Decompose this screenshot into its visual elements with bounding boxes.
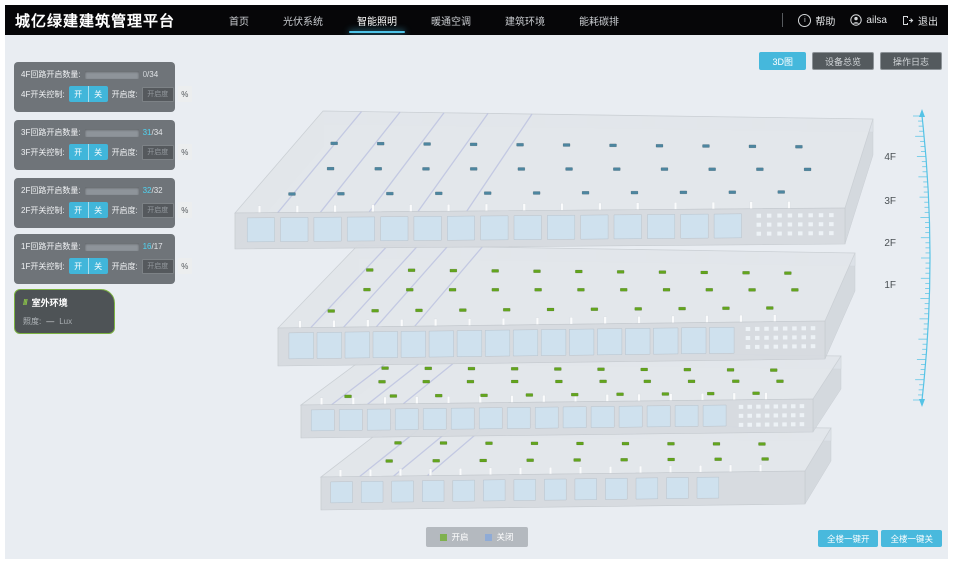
nav-item-home[interactable]: 首页: [227, 4, 251, 37]
help-icon: i: [798, 14, 811, 27]
switch-off-button[interactable]: 关: [89, 144, 108, 160]
switch-control-label: 2F开关控制:: [21, 205, 65, 216]
dim-level-label: 开启度:: [112, 147, 138, 158]
dim-level-input[interactable]: [142, 87, 174, 102]
switch-off-button[interactable]: 关: [89, 258, 108, 274]
logout-icon: [902, 15, 914, 26]
floor-panel-4f: 4F回路开启数量: 0/34 4F开关控制: 开 关 开启度: %: [14, 62, 175, 112]
logout-button[interactable]: 退出: [902, 13, 938, 28]
dim-level-label: 开启度:: [112, 89, 138, 100]
nav-item-hvac[interactable]: 暖通空调: [429, 4, 473, 37]
view-toolbar: 3D图 设备总览 操作日志: [759, 52, 942, 70]
dim-level-input[interactable]: [142, 259, 174, 274]
floor-panel-1f: 1F回路开启数量: 16/17 1F开关控制: 开 关 开启度: %: [14, 234, 175, 284]
circuit-count-value: 32/32: [143, 186, 163, 195]
legend-on-label: 开启: [451, 531, 468, 543]
legend-item-off: 关闭: [485, 531, 514, 543]
circuit-count-label: 1F回路开启数量:: [21, 241, 81, 252]
circuit-progress-bar: [85, 187, 139, 195]
illuminance-value: —: [46, 317, 54, 326]
page: 城亿绿建建筑管理平台 首页 光伏系统 智能照明 暖通空调 建筑环境 能耗碳排 i…: [0, 0, 953, 564]
floor-panel-2f: 2F回路开启数量: 32/32 2F开关控制: 开 关 开启度: %: [14, 178, 175, 228]
circuit-count-label: 3F回路开启数量:: [21, 127, 81, 138]
legend-off-label: 关闭: [497, 531, 514, 543]
dim-level-label: 开启度:: [112, 261, 138, 272]
circuit-count-label: 4F回路开启数量:: [21, 69, 81, 80]
device-overview-button[interactable]: 设备总览: [812, 52, 874, 70]
operation-log-button[interactable]: 操作日志: [880, 52, 942, 70]
header-right: i 帮助 ailsa 退出: [782, 13, 938, 28]
percent-button[interactable]: %: [178, 202, 192, 218]
user-icon: [850, 14, 862, 26]
floor-axis-label-2f[interactable]: 2F: [884, 238, 896, 249]
switch-off-button[interactable]: 关: [89, 86, 108, 102]
switch-off-button[interactable]: 关: [89, 202, 108, 218]
user-menu[interactable]: ailsa: [850, 14, 887, 26]
floor-axis-label-1f[interactable]: 1F: [884, 280, 896, 291]
switch-control-label: 4F开关控制:: [21, 89, 65, 100]
dim-level-label: 开启度:: [112, 205, 138, 216]
circuit-progress-bar: [85, 71, 139, 79]
help-button[interactable]: i 帮助: [798, 13, 835, 28]
header-divider: [782, 13, 783, 27]
outdoor-env-title: 室外环境: [32, 296, 68, 309]
all-floors-on-button[interactable]: 全楼一键开: [818, 530, 879, 547]
floor-axis-label-3f[interactable]: 3F: [884, 196, 896, 207]
dim-level-input[interactable]: [142, 145, 174, 160]
main-nav: 首页 光伏系统 智能照明 暖通空调 建筑环境 能耗碳排: [227, 5, 621, 35]
nav-item-smart-lighting[interactable]: 智能照明: [355, 4, 399, 37]
nav-item-pv-system[interactable]: 光伏系统: [281, 4, 325, 37]
main-area: 4F回路开启数量: 0/34 4F开关控制: 开 关 开启度: %: [5, 35, 948, 559]
percent-button[interactable]: %: [178, 144, 192, 160]
switch-control-label: 3F开关控制:: [21, 147, 65, 158]
circuit-count-label: 2F回路开启数量:: [21, 185, 81, 196]
switch-control-label: 1F开关控制:: [21, 261, 65, 272]
legend-on-swatch: [439, 534, 446, 541]
view-3d-button[interactable]: 3D图: [759, 52, 806, 70]
percent-button[interactable]: %: [178, 86, 192, 102]
outdoor-env-panel: /// 室外环境 照度: — Lux: [14, 289, 115, 334]
app-title: 城亿绿建建筑管理平台: [15, 10, 175, 31]
legend-off-swatch: [485, 534, 492, 541]
switch-on-button[interactable]: 开: [69, 202, 89, 218]
all-floors-off-button[interactable]: 全楼一键关: [881, 530, 942, 547]
circuit-progress-bar: [85, 129, 139, 137]
help-label: 帮助: [815, 13, 835, 28]
floor-axis-label-4f[interactable]: 4F: [884, 152, 896, 163]
username: ailsa: [866, 15, 887, 26]
nav-item-energy-carbon[interactable]: 能耗碳排: [577, 4, 621, 37]
switch-on-button[interactable]: 开: [69, 86, 89, 102]
legend-item-on: 开启: [439, 531, 468, 543]
floor-zoom-ruler[interactable]: [906, 108, 942, 408]
dim-level-input[interactable]: [142, 203, 174, 218]
floor-panel-3f: 3F回路开启数量: 31/34 3F开关控制: 开 关 开启度: %: [14, 120, 175, 170]
slashes-icon: ///: [23, 298, 27, 307]
switch-on-button[interactable]: 开: [69, 258, 89, 274]
circuit-count-value: 16/17: [143, 242, 163, 251]
illuminance-label: 照度:: [23, 316, 41, 327]
percent-button[interactable]: %: [178, 258, 192, 274]
nav-item-building-env[interactable]: 建筑环境: [503, 4, 547, 37]
circuit-progress-bar: [85, 243, 139, 251]
bulk-actions: 全楼一键开 全楼一键关: [818, 530, 942, 547]
circuit-count-value: 0/34: [143, 70, 159, 79]
circuit-count-value: 31/34: [143, 128, 163, 137]
building-3d-canvas[interactable]: [223, 93, 885, 525]
logout-label: 退出: [918, 13, 938, 28]
illuminance-unit: Lux: [59, 317, 72, 326]
switch-on-button[interactable]: 开: [69, 144, 89, 160]
top-header-bar: 城亿绿建建筑管理平台 首页 光伏系统 智能照明 暖通空调 建筑环境 能耗碳排 i…: [5, 5, 948, 35]
frame: 城亿绿建建筑管理平台 首页 光伏系统 智能照明 暖通空调 建筑环境 能耗碳排 i…: [5, 5, 948, 559]
status-legend: 开启 关闭: [425, 527, 527, 547]
